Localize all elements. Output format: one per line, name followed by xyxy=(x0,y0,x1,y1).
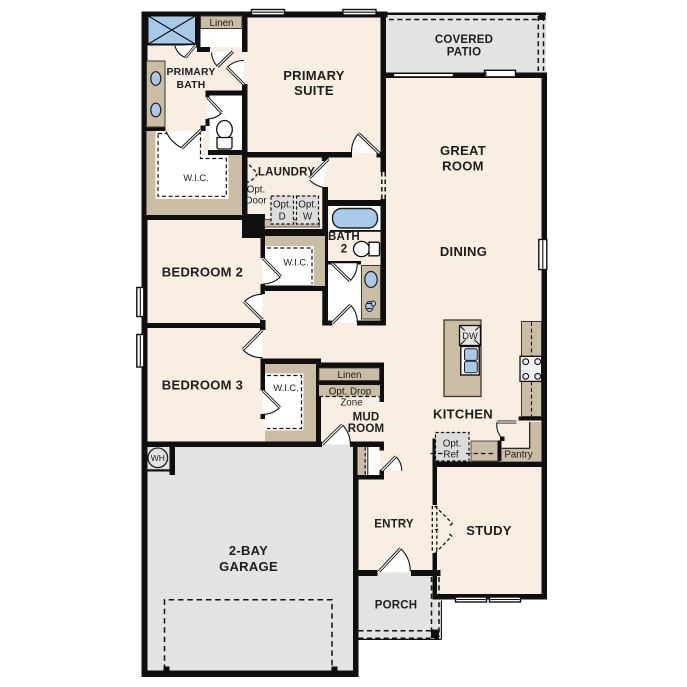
svg-text:COVERED: COVERED xyxy=(435,34,493,46)
svg-text:GARAGE: GARAGE xyxy=(219,559,278,574)
svg-text:Zone: Zone xyxy=(340,398,363,409)
svg-text:DINING: DINING xyxy=(440,244,487,259)
svg-text:STUDY: STUDY xyxy=(466,523,512,538)
svg-text:Opt.: Opt. xyxy=(247,185,266,196)
svg-text:BEDROOM 3: BEDROOM 3 xyxy=(162,378,243,393)
svg-text:Opt.: Opt. xyxy=(298,200,317,211)
svg-text:BEDROOM 2: BEDROOM 2 xyxy=(162,265,243,280)
svg-text:MUD: MUD xyxy=(353,412,380,424)
svg-text:GREAT: GREAT xyxy=(440,143,486,158)
svg-text:W: W xyxy=(303,212,313,223)
svg-text:ROOM: ROOM xyxy=(348,423,385,435)
svg-text:WH: WH xyxy=(151,453,165,463)
svg-text:ENTRY: ENTRY xyxy=(374,519,414,531)
svg-text:Door: Door xyxy=(245,196,267,207)
svg-text:ROOM: ROOM xyxy=(442,159,484,174)
svg-text:2-BAY: 2-BAY xyxy=(229,543,268,558)
svg-text:PRIMARY: PRIMARY xyxy=(167,67,216,78)
svg-text:2: 2 xyxy=(341,244,348,256)
svg-text:W.I.C.: W.I.C. xyxy=(283,258,308,268)
svg-text:KITCHEN: KITCHEN xyxy=(433,407,493,422)
svg-text:SUITE: SUITE xyxy=(294,83,334,98)
svg-text:DW: DW xyxy=(462,331,478,341)
svg-text:W.I.C.: W.I.C. xyxy=(183,173,208,183)
svg-text:PRIMARY: PRIMARY xyxy=(283,68,345,83)
svg-text:Pantry: Pantry xyxy=(504,450,532,461)
svg-text:LAUNDRY: LAUNDRY xyxy=(258,167,315,179)
svg-text:Ref: Ref xyxy=(443,450,459,461)
svg-text:Linen: Linen xyxy=(338,370,362,381)
svg-text:W.I.C.: W.I.C. xyxy=(273,383,298,393)
svg-text:Opt. Drop: Opt. Drop xyxy=(329,387,372,398)
svg-text:PATIO: PATIO xyxy=(447,47,481,59)
svg-text:D: D xyxy=(279,212,286,223)
svg-text:Opt.: Opt. xyxy=(273,200,292,211)
svg-text:BATH: BATH xyxy=(177,80,206,91)
svg-text:BATH: BATH xyxy=(328,231,360,243)
svg-text:Linen: Linen xyxy=(210,18,234,29)
svg-text:Opt.: Opt. xyxy=(443,439,462,450)
svg-text:PORCH: PORCH xyxy=(375,600,418,612)
